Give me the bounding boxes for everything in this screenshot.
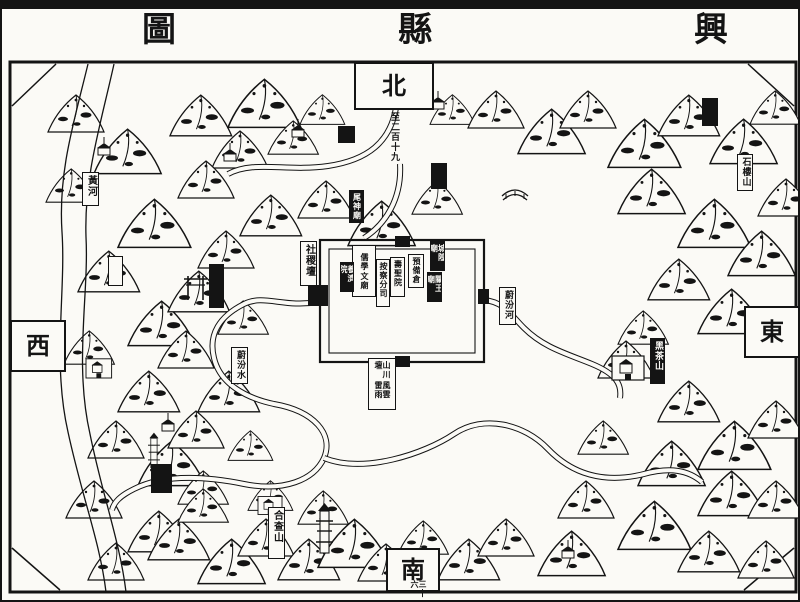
mountains-layer	[46, 79, 800, 584]
village-icon	[161, 413, 175, 431]
bridge-icon	[502, 190, 528, 200]
label-shiloushan: 石樓山	[737, 154, 753, 191]
woodblock-county-map: 興 縣 圖	[0, 0, 800, 602]
south-distance-note: 三十六	[410, 580, 426, 602]
label-anchafensi: 按察分司	[376, 259, 390, 307]
illegible-cartouche	[338, 126, 355, 143]
label-shejitan: 社稷壇	[300, 241, 317, 286]
label-heichashan: 黑茶山	[650, 338, 665, 384]
label-shanchuantan: 風雲雷雨山川壇	[368, 358, 396, 410]
village-icon	[97, 137, 111, 155]
cardinal-east: 東	[744, 306, 800, 358]
temple-compound-icon	[86, 359, 112, 378]
north-distance-note: 至二百十九	[389, 112, 398, 178]
label-weifenshui: 蔚汾水	[231, 347, 248, 384]
city-west-gate	[308, 285, 328, 306]
illegible-cartouche	[209, 264, 224, 308]
label-huanghe: 黃河	[82, 172, 99, 206]
cardinal-west: 西	[10, 320, 66, 372]
illegible-cartouche	[108, 256, 123, 286]
temple-compound-icon	[612, 356, 644, 380]
label-weifenhe: 蔚汾河	[499, 287, 516, 325]
label-shoushengyuan: 壽聖院	[390, 257, 405, 297]
label-hechashan: 合查山	[268, 507, 285, 559]
illegible-cartouche	[702, 98, 718, 126]
label-weishenmiao: 尾神廟	[349, 190, 364, 223]
city-east-gate	[478, 289, 489, 304]
label-wenmiao-ruxue: 文廟儒學	[352, 245, 376, 297]
label-yangjiyuan: 養濟院	[340, 262, 354, 292]
city-south-gate	[395, 356, 410, 367]
illegible-cartouche	[431, 163, 447, 189]
illegible-cartouche	[151, 464, 172, 493]
label-chenghuangmiao: 城隍廟	[430, 241, 445, 271]
city-north-gate	[395, 236, 410, 247]
label-guanwangmiao: 關王廟	[427, 272, 442, 302]
label-yubeicang: 預備倉	[408, 254, 424, 288]
cardinal-north: 北	[354, 62, 434, 110]
